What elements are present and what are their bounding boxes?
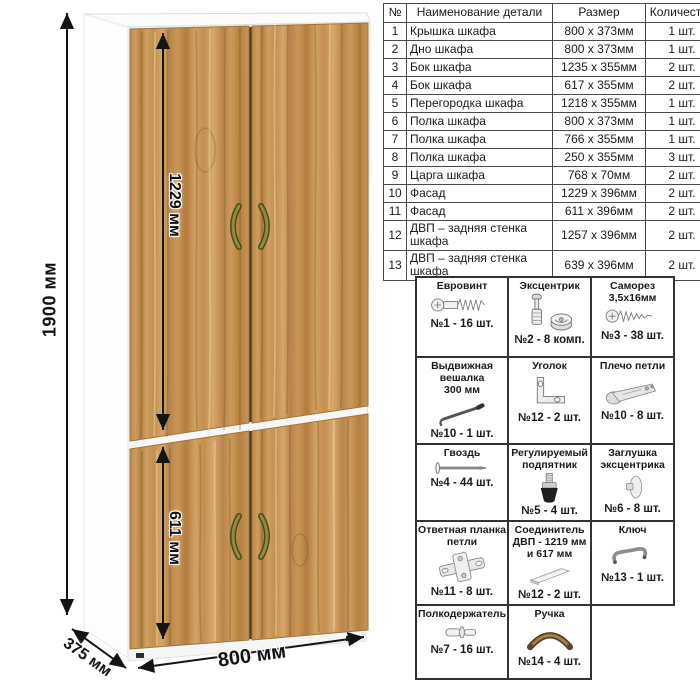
hardware-title: Выдвижная вешалка 300 мм: [431, 360, 493, 396]
hardware-title: Полкодержатель: [418, 608, 506, 620]
part-num: 11: [384, 203, 407, 221]
hardware-cell: Эксцентрик №2 - 8 комп.: [508, 277, 591, 357]
hardware-row: Выдвижная вешалка 300 мм №10 - 1 шт. Уго…: [416, 357, 674, 444]
part-name: ДВП – задняя стенка шкафа: [407, 221, 553, 251]
wardrobe-illustration: 1900 мм 1229 мм 611 мм 800 мм 375 мм: [0, 0, 410, 700]
hardware-cell: Евровинт №1 - 16 шт.: [416, 277, 508, 357]
hardware-row: Полкодержатель №7 - 16 шт. Ручка №14 - 4…: [416, 605, 674, 679]
part-qty: 1 шт.: [646, 131, 700, 149]
hardware-empty-cell: [591, 605, 674, 679]
hardware-title: Заглушка эксцентрика: [600, 447, 665, 471]
hardware-count: №12 - 2 шт.: [518, 589, 581, 602]
hardware-title: Соединитель ДВП - 1219 мм и 617 мм: [513, 524, 587, 560]
part-name: Крышка шкафа: [407, 23, 553, 41]
shelf-pin-icon: [428, 620, 496, 644]
hardware-cell: Соединитель ДВП - 1219 мм и 617 мм №12 -…: [508, 521, 591, 604]
table-row: 10Фасад1229 x 396мм2 шт.: [384, 185, 700, 203]
lower-right-door: [252, 414, 368, 640]
part-num: 9: [384, 167, 407, 185]
hardware-count: №10 - 1 шт.: [431, 428, 494, 441]
hardware-count: №2 - 8 комп.: [514, 334, 584, 347]
part-num: 12: [384, 221, 407, 251]
hinge-arm-icon: [599, 372, 667, 410]
assembly-sheet: { "dims": { "height": "1900 мм", "upper_…: [0, 0, 700, 700]
hardware-count: №6 - 8 шт.: [604, 503, 660, 516]
small-screw-icon: [599, 304, 667, 330]
hardware-row: Ответная планка петли №11 - 8 шт. Соедин…: [416, 521, 674, 604]
part-qty: 1 шт.: [646, 41, 700, 59]
hardware-count: №12 - 2 шт.: [518, 412, 581, 425]
part-size: 1235 x 355мм: [553, 59, 646, 77]
part-qty: 2 шт.: [646, 59, 700, 77]
part-num: 8: [384, 149, 407, 167]
hardware-cell: Уголок №12 - 2 шт.: [508, 357, 591, 444]
hardware-title: Ответная планка петли: [418, 524, 506, 548]
part-size: 800 x 373мм: [553, 113, 646, 131]
hardware-cell: Заглушка эксцентрика №6 - 8 шт.: [591, 444, 674, 521]
part-qty: 2 шт.: [646, 203, 700, 221]
hardware-cell: Ручка №14 - 4 шт.: [508, 605, 591, 679]
part-size: 766 x 355мм: [553, 131, 646, 149]
hardware-title: Уголок: [532, 360, 567, 372]
part-num: 2: [384, 41, 407, 59]
hardware-count: №4 - 44 шт.: [431, 477, 494, 490]
part-num: 7: [384, 131, 407, 149]
part-name: Бок шкафа: [407, 59, 553, 77]
eccentric-cam-icon: [516, 292, 584, 334]
hardware-count: №1 - 16 шт.: [431, 318, 494, 331]
part-num: 6: [384, 113, 407, 131]
hardware-title: Евровинт: [437, 280, 488, 292]
hardware-count: №5 - 4 шт.: [521, 505, 577, 518]
table-row: 4Бок шкафа617 x 355мм2 шт.: [384, 77, 700, 95]
part-num: 4: [384, 77, 407, 95]
part-name: Полка шкафа: [407, 149, 553, 167]
part-qty: 1 шт.: [646, 113, 700, 131]
part-size: 1257 x 396мм: [553, 221, 646, 251]
hardware-row: Евровинт №1 - 16 шт. Эксцентрик №2 - 8 к…: [416, 277, 674, 357]
hardware-count: №14 - 4 шт.: [518, 656, 581, 669]
header-qty: Количество: [646, 4, 700, 23]
table-row: 6Полка шкафа800 x 373мм1 шт.: [384, 113, 700, 131]
hardware-count: №7 - 16 шт.: [431, 644, 494, 657]
part-name: Бок шкафа: [407, 77, 553, 95]
hardware-cell: Регулируемый подпятник №5 - 4 шт.: [508, 444, 591, 521]
header-name: Наименование детали: [407, 4, 553, 23]
hardware-row: Гвоздь №4 - 44 шт. Регулируемый подпятни…: [416, 444, 674, 521]
adjustable-foot-icon: [516, 471, 584, 505]
table-row: 5Перегородка шкафа1218 x 355мм1 шт.: [384, 95, 700, 113]
part-qty: 3 шт.: [646, 149, 700, 167]
parts-table-header: № Наименование детали Размер Количество: [384, 4, 700, 23]
hardware-count: №10 - 8 шт.: [601, 410, 664, 423]
hardware-cell: Саморез 3,5x16мм №3 - 38 шт.: [591, 277, 674, 357]
table-row: 2Дно шкафа800 x 373мм1 шт.: [384, 41, 700, 59]
part-num: 10: [384, 185, 407, 203]
part-num: 1: [384, 23, 407, 41]
hardware-cell: Выдвижная вешалка 300 мм №10 - 1 шт.: [416, 357, 508, 444]
part-qty: 1 шт.: [646, 23, 700, 41]
part-qty: 2 шт.: [646, 185, 700, 203]
hardware-grid: Евровинт №1 - 16 шт. Эксцентрик №2 - 8 к…: [415, 276, 675, 680]
euro-screw-icon: [428, 292, 496, 318]
handle-icon: [516, 620, 584, 656]
table-row: 11Фасад611 x 396мм2 шт.: [384, 203, 700, 221]
table-row: 8Полка шкафа250 x 355мм3 шт.: [384, 149, 700, 167]
hdf-connector-icon: [516, 561, 584, 589]
hardware-title: Саморез 3,5x16мм: [609, 280, 657, 304]
part-name: Царга шкафа: [407, 167, 553, 185]
pullout-hanger-icon: [428, 396, 496, 428]
part-name: Фасад: [407, 203, 553, 221]
part-qty: 2 шт.: [646, 77, 700, 95]
table-row: 3Бок шкафа1235 x 355мм2 шт.: [384, 59, 700, 77]
hardware-title: Плечо петли: [600, 360, 665, 372]
part-num: 13: [384, 250, 407, 280]
part-size: 800 x 373мм: [553, 23, 646, 41]
part-size: 1218 x 355мм: [553, 95, 646, 113]
hardware-title: Ручка: [535, 608, 565, 620]
cam-cover-icon: [599, 471, 667, 503]
hardware-title: Регулируемый подпятник: [511, 447, 588, 471]
table-row: 12ДВП – задняя стенка шкафа1257 x 396мм2…: [384, 221, 700, 251]
hardware-cell: Полкодержатель №7 - 16 шт.: [416, 605, 508, 679]
hardware-cell: Гвоздь №4 - 44 шт.: [416, 444, 508, 521]
part-size: 611 x 396мм: [553, 203, 646, 221]
hardware-title: Ключ: [619, 524, 647, 536]
part-size: 617 x 355мм: [553, 77, 646, 95]
dimension-label-upper-door: 1229 мм: [165, 165, 183, 245]
hinge-plate-icon: [428, 548, 496, 586]
part-num: 5: [384, 95, 407, 113]
header-num: №: [384, 4, 407, 23]
table-row: 7Полка шкафа766 x 355мм1 шт.: [384, 131, 700, 149]
part-qty: 1 шт.: [646, 95, 700, 113]
hardware-cell: Ключ №13 - 1 шт.: [591, 521, 674, 604]
header-size: Размер: [553, 4, 646, 23]
part-num: 3: [384, 59, 407, 77]
hardware-count: №13 - 1 шт.: [601, 572, 664, 585]
hardware-title: Эксцентрик: [519, 280, 579, 292]
nail-icon: [428, 459, 496, 477]
hardware-count: №3 - 38 шт.: [601, 330, 664, 343]
part-name: Фасад: [407, 185, 553, 203]
part-qty: 2 шт.: [646, 221, 700, 251]
part-size: 250 x 355мм: [553, 149, 646, 167]
part-size: 1229 x 396мм: [553, 185, 646, 203]
parts-table: № Наименование детали Размер Количество …: [383, 3, 700, 281]
part-name: Перегородка шкафа: [407, 95, 553, 113]
part-size: 800 x 373мм: [553, 41, 646, 59]
part-qty: 2 шт.: [646, 167, 700, 185]
hardware-cell: Плечо петли №10 - 8 шт.: [591, 357, 674, 444]
cabinet-side-panel: [84, 14, 128, 658]
hardware-count: №11 - 8 шт.: [431, 586, 493, 599]
dimension-label-height: 1900 мм: [40, 260, 61, 340]
corner-bracket-icon: [516, 372, 584, 412]
table-row: 1Крышка шкафа800 x 373мм1 шт.: [384, 23, 700, 41]
part-name: Дно шкафа: [407, 41, 553, 59]
dimension-label-lower-door: 611 мм: [165, 498, 183, 578]
part-name: Полка шкафа: [407, 113, 553, 131]
hardware-cell: Ответная планка петли №11 - 8 шт.: [416, 521, 508, 604]
part-name: Полка шкафа: [407, 131, 553, 149]
hardware-title: Гвоздь: [444, 447, 481, 459]
wardrobe-drawing: [0, 0, 410, 700]
cabinet-foot: [136, 653, 144, 658]
key-icon: [599, 536, 667, 572]
table-row: 9Царга шкафа768 x 70мм2 шт.: [384, 167, 700, 185]
part-size: 768 x 70мм: [553, 167, 646, 185]
